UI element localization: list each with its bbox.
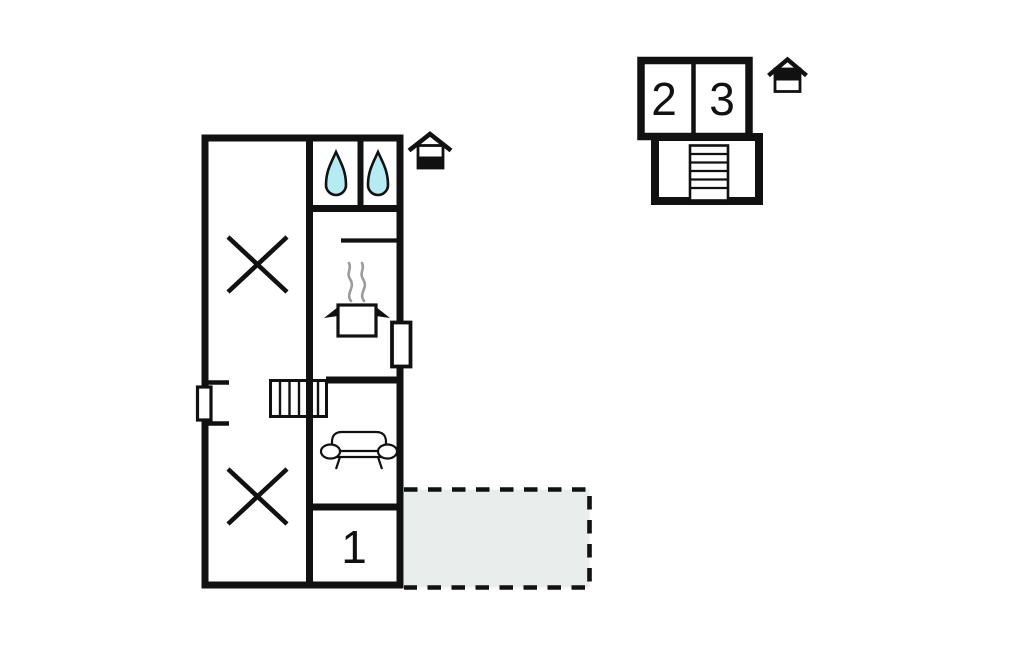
stairs-icon <box>690 146 728 201</box>
sofa-armrest <box>321 445 340 459</box>
terrace-area <box>404 490 590 588</box>
pot-body <box>338 305 376 336</box>
house-filled-upper-half <box>775 69 800 81</box>
floor-plan-canvas: 1 2 3 <box>0 0 1024 652</box>
house-upper-floor-icon <box>769 60 807 92</box>
ground-floor-plan: 1 <box>198 138 590 588</box>
window <box>392 323 411 367</box>
upper-floor-plan: 2 3 <box>641 61 759 202</box>
house-ground-floor-icon <box>409 134 451 168</box>
room-1-label: 1 <box>341 521 367 573</box>
window <box>198 387 212 420</box>
room-2-label: 2 <box>651 73 677 125</box>
house-filled-lower-half <box>418 157 443 169</box>
stairs-icon <box>271 381 327 417</box>
sofa-armrest <box>378 445 397 459</box>
room-3-label: 3 <box>709 73 735 125</box>
